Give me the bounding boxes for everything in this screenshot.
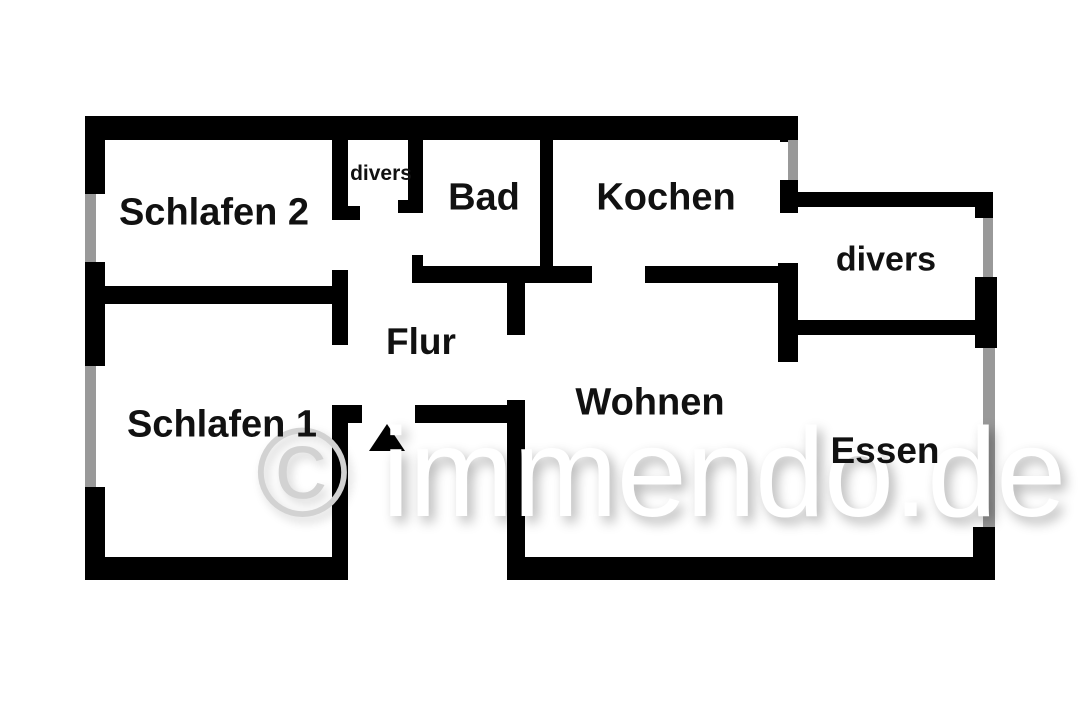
room-label-divers-closet: divers (350, 162, 412, 186)
room-label-kochen: Kochen (596, 177, 735, 220)
room-label-flur: Flur (386, 321, 456, 363)
outer-right-wall-corner (780, 116, 798, 142)
bad-bottom-wall (412, 266, 592, 283)
bad-kochen-divider-wall (540, 140, 553, 268)
closet-left-door-stub (332, 206, 360, 220)
watermark: © immendo.de (120, 284, 1065, 662)
kochen-bottom-wall (645, 266, 780, 283)
outer-left-wall-middle (85, 262, 105, 366)
outer-right-wall-mid (780, 180, 798, 213)
room-label-wohnen: Wohnen (575, 382, 724, 425)
outer-left-wall-upper (85, 116, 105, 194)
room-label-bad: Bad (448, 177, 520, 220)
window-kochen (788, 140, 798, 180)
window-schlafen2 (85, 194, 96, 262)
room-label-divers-room: divers (836, 241, 936, 280)
room-label-essen: Essen (830, 430, 939, 472)
closet-right-door-stub (398, 200, 423, 213)
room-label-schlafen-1: Schlafen 1 (127, 404, 317, 447)
room-label-schlafen-2: Schlafen 2 (119, 192, 309, 235)
window-divers (983, 218, 993, 277)
outer-top-wall (85, 116, 798, 140)
floor-plan: © immendo.de Schlafen 2diversBadKochendi… (0, 0, 1080, 719)
window-schlafen1 (85, 366, 96, 487)
divers-right-corner (975, 192, 993, 218)
divers-top-wall (797, 192, 993, 207)
